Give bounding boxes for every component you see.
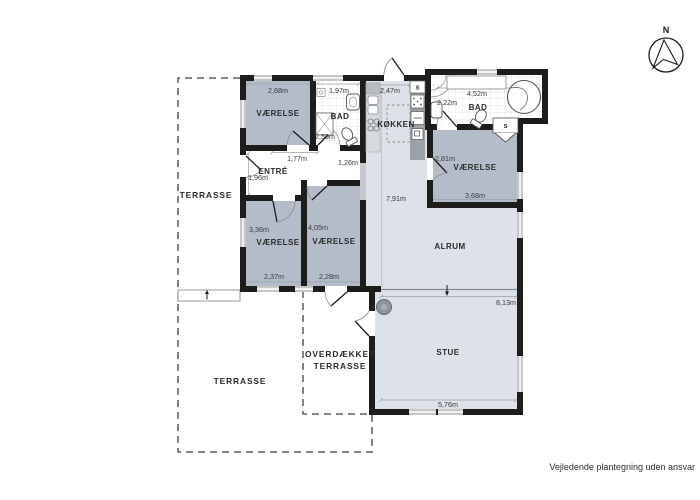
- north-compass-icon: N: [649, 25, 683, 72]
- dim-vaerelse-ml-depth: 3,36m: [249, 225, 269, 234]
- bathtub-icon: [508, 81, 541, 114]
- dim-hall-width: 1,26m: [338, 158, 358, 167]
- label-overdaekket-line1: OVERDÆKKET: [305, 349, 375, 359]
- floor-plan-drawing: 2,68m VÆRELSE 1,97m BAD 2,59m 2,47m KØKK…: [0, 0, 700, 500]
- room-vaerelse-mid-right: [307, 186, 360, 286]
- wood-stove-icon: [377, 300, 392, 315]
- dim-bad-tl-depth: 2,59m: [315, 132, 335, 141]
- label-vaerelse-tr: VÆRELSE: [453, 163, 496, 172]
- label-bad-tr: BAD: [469, 103, 488, 112]
- label-vaerelse-mr: VÆRELSE: [312, 237, 355, 246]
- dim-bad-tr-width: 4,52m: [467, 89, 487, 98]
- entry-step: [178, 290, 240, 301]
- dim-stue-width-bottom: 5,76m: [438, 400, 458, 409]
- label-stue: STUE: [436, 348, 459, 357]
- dim-alrum-depth: 7,91m: [386, 194, 406, 203]
- dim-vaerelse-ml-width: 2,37m: [264, 272, 284, 281]
- dim-stue-width-top: 8,13m: [496, 298, 516, 307]
- label-terrasse-bottom: TERRASSE: [214, 376, 267, 386]
- floor-drain-icon: [317, 89, 325, 97]
- bath-counter: [447, 76, 506, 89]
- dim-vaerelse-tl-width: 2,68m: [268, 86, 288, 95]
- dim-bad-tl-width: 1,97m: [329, 86, 349, 95]
- fridge-icon: [366, 83, 380, 94]
- dim-entre-width: 1,77m: [287, 154, 307, 163]
- dim-bad-tr-width2: 2,22m: [437, 98, 457, 107]
- label-closet-s-kitchen: S: [416, 86, 420, 92]
- label-koekken: KØKKEN: [377, 120, 414, 129]
- dim-vaerelse-mr-depth: 4,05m: [308, 223, 328, 232]
- label-bad-tl: BAD: [331, 112, 350, 121]
- dim-entre-depth: 1,96m: [248, 173, 268, 182]
- label-alrum: ALRUM: [434, 242, 465, 251]
- small-appliance-icon: [412, 129, 423, 140]
- compass-north-label: N: [663, 25, 670, 35]
- label-vaerelse-tl: VÆRELSE: [256, 109, 299, 118]
- sink-icon: [347, 94, 360, 110]
- dim-vaerelse-tr-depth: 2,81m: [435, 154, 455, 163]
- dim-koekken-width: 2,47m: [380, 86, 400, 95]
- dim-vaerelse-mr-width: 2,28m: [319, 272, 339, 281]
- disclaimer-text: Vejledende plantegning uden ansvar: [549, 462, 695, 472]
- label-terrasse-left: TERRASSE: [180, 190, 233, 200]
- dim-vaerelse-tr-width: 3,68m: [465, 191, 485, 200]
- label-overdaekket-line2: TERRASSE: [314, 361, 367, 371]
- floor-plan-page: 2,68m VÆRELSE 1,97m BAD 2,59m 2,47m KØKK…: [0, 0, 700, 500]
- vent-appliance-icon: [411, 95, 424, 108]
- label-vaerelse-ml: VÆRELSE: [256, 238, 299, 247]
- label-closet-s-bedroom: S: [504, 124, 508, 130]
